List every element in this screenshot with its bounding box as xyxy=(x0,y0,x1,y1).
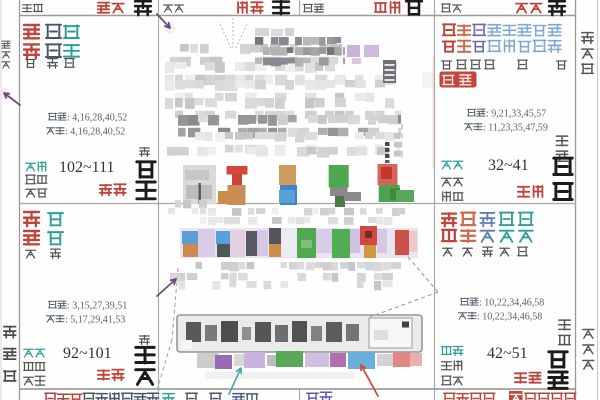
svg-text:92~101: 92~101 xyxy=(63,345,112,362)
svg-text:102~111: 102~111 xyxy=(59,159,114,176)
svg-text:: 4,16,28,40,52: : 4,16,28,40,52 xyxy=(65,127,125,138)
svg-text:: 3,15,27,39,51: : 3,15,27,39,51 xyxy=(67,301,127,312)
svg-text:42~51: 42~51 xyxy=(487,345,528,362)
svg-text:: 10,22,34,46,58: : 10,22,34,46,58 xyxy=(479,298,544,309)
svg-text:: 9,21,33,45,57: : 9,21,33,45,57 xyxy=(486,109,546,120)
svg-text:32~41: 32~41 xyxy=(488,157,529,174)
svg-text:: 4,16,28,40,52: : 4,16,28,40,52 xyxy=(67,113,127,124)
svg-text:: 11,23,35,47,59: : 11,23,35,47,59 xyxy=(483,123,548,134)
svg-text:: 5,17,29,41,53: : 5,17,29,41,53 xyxy=(65,315,125,326)
svg-text:: 10,22,34,46,58: : 10,22,34,46,58 xyxy=(477,312,542,323)
